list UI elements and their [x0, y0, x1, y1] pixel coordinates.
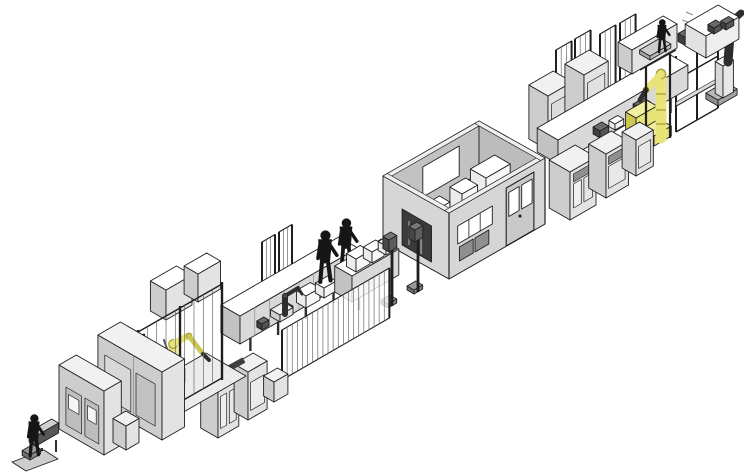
panel-detail	[221, 393, 227, 429]
head	[342, 219, 351, 228]
leg	[37, 441, 39, 455]
panel-detail	[574, 180, 582, 209]
screenshot-canvas	[0, 0, 744, 475]
production-line-illustration	[0, 0, 744, 475]
arm	[658, 27, 660, 37]
left-machine-cluster	[12, 322, 185, 471]
leg	[659, 40, 660, 52]
arm	[339, 230, 341, 245]
leg	[320, 263, 322, 282]
motion-dash	[686, 12, 693, 15]
head	[321, 231, 331, 241]
machine-cabinet	[622, 122, 653, 176]
pedestal-column-left	[715, 62, 723, 99]
central-enclosure-room	[383, 121, 545, 279]
small-service-cabinet	[113, 411, 139, 450]
back-cabinets	[150, 253, 220, 320]
head	[30, 415, 38, 423]
door-handle	[519, 215, 521, 217]
motion-dash	[682, 20, 688, 22]
leg	[664, 40, 666, 51]
right-machine-section	[529, 5, 741, 220]
head	[659, 19, 665, 25]
joint	[283, 294, 288, 299]
arm	[318, 243, 320, 259]
cabinet-right	[162, 359, 185, 440]
leg	[30, 441, 31, 456]
arm	[28, 424, 30, 437]
leg	[328, 263, 330, 280]
robot-link	[189, 336, 203, 354]
